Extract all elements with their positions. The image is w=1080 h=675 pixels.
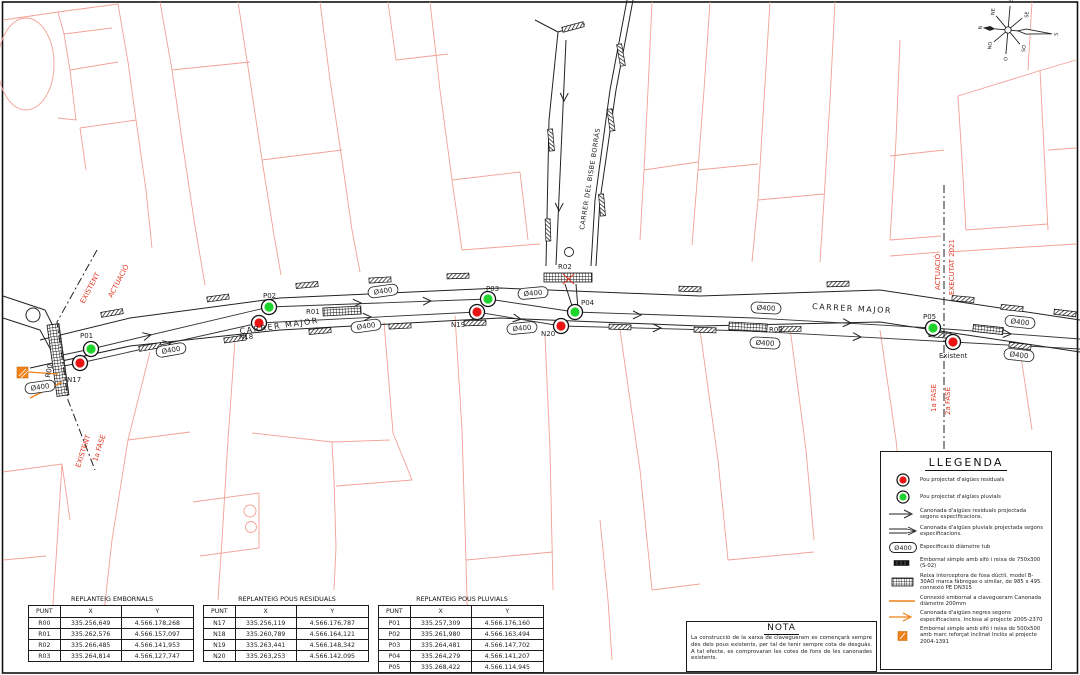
table-cell: 335.264,279 <box>410 651 471 662</box>
compass-o: O <box>1003 57 1009 62</box>
note-title: NOTA <box>691 623 872 633</box>
table-header-cell: X <box>410 606 471 618</box>
compass-so: SO <box>1021 45 1028 53</box>
compass-se: SE <box>1024 11 1031 18</box>
point-label-existent: Existent <box>939 352 968 360</box>
table-cell: 335.266,485 <box>60 640 121 651</box>
manhole-existing <box>26 308 40 322</box>
diameter-badge-icon: Ø400 <box>886 541 920 554</box>
compass-s: S <box>1054 32 1060 36</box>
table-cell: 4.566.147,702 <box>471 640 543 651</box>
table-row: P01335.257,3094.566.176,160 <box>379 618 544 629</box>
plan-sheet: Ø400 Ø400 Ø400 Ø400 Ø400 Ø400 Ø400 Ø400 … <box>0 0 1080 675</box>
point-label-r03: R03 <box>769 326 783 334</box>
table-cell: 335.256,649 <box>60 618 121 629</box>
table-cell: 335.268,422 <box>410 662 471 673</box>
table-row: P05335.268,4224.566.114,945 <box>379 662 544 673</box>
legend-item: Canonada d'aigües pluvials projectada se… <box>886 524 1046 538</box>
table-header-cell: X <box>235 606 296 618</box>
table-header-cell: PUNT <box>29 606 61 618</box>
table-header-row: PUNTXY <box>379 606 544 618</box>
coordinate-table: PUNTXYP01335.257,3094.566.176,160P02335.… <box>378 605 544 673</box>
legend-item-label: Especificació diàmetre tub <box>920 544 990 550</box>
diameter-label: Ø400 <box>512 324 532 334</box>
embornal-icon <box>886 558 920 568</box>
legend-item-label: Canonada d'aigües residuals projectada s… <box>920 508 1046 521</box>
table-row: N17335.256,1194.566.176,787 <box>204 618 369 629</box>
phase-actuacio-top: ACTUACIÓ <box>106 262 131 299</box>
table-header-row: PUNTXY <box>204 606 369 618</box>
phase-1afase-right: 1a FASE <box>930 384 938 412</box>
legend-item: Ø400 Especificació diàmetre tub <box>886 541 1046 554</box>
compass-e: E <box>1008 0 1014 3</box>
table-header-cell: PUNT <box>204 606 236 618</box>
table-header-cell: Y <box>121 606 193 618</box>
table-row: P03335.264,4814.566.147,702 <box>379 640 544 651</box>
table-cell: 4.566.176,787 <box>296 618 368 629</box>
street-edges <box>3 0 1080 368</box>
diameter-label: Ø400 <box>523 289 543 299</box>
legend-item-label: Canonada d'aigües negres segons especifi… <box>920 610 1046 623</box>
table-cell: 4.566.163,494 <box>471 629 543 640</box>
table-cell: 4.566.164,121 <box>296 629 368 640</box>
table-cell: 4.566.141,207 <box>471 651 543 662</box>
coordinate-table: PUNTXYR00335.256,6494.566.178,268R01335.… <box>28 605 194 662</box>
legend-item: Pou projectat d'aigües residuals <box>886 473 1046 487</box>
table-row: N20335.263,2534.566.142,095 <box>204 651 369 662</box>
legend-item-label: Pou projectat d'aigües residuals <box>920 477 1004 483</box>
pipe-pluvial-icon <box>886 524 920 538</box>
table-row: R01335.262,5764.566.157,097 <box>29 629 194 640</box>
table-title: REPLANTEIG POUS RESIDUALS <box>203 593 371 605</box>
table-cell: 4.566.148,342 <box>296 640 368 651</box>
phase-existent-bottom: EXISTENT <box>74 433 92 468</box>
table-cell: N17 <box>204 618 236 629</box>
pou-residual-icon <box>886 473 920 487</box>
compass-n: N <box>978 25 984 30</box>
compass-rose: N NE E SE S SO O NO <box>975 0 1062 65</box>
table-cell: 335.264,481 <box>410 640 471 651</box>
compass-ne: NE <box>990 8 997 15</box>
legend-item-label: Embornal simple amb sifó i reixa de 750x… <box>920 557 1046 570</box>
legend-item-label: Reixa interceptora de fosa dúctil, model… <box>920 573 1046 592</box>
phase-2afase-right: 2a FASE <box>944 387 952 415</box>
table-cell: 335.264,814 <box>60 651 121 662</box>
table-cell: 4.566.114,945 <box>471 662 543 673</box>
table-header-cell: Y <box>296 606 368 618</box>
phase-actuacio-right: ACTUACIÓ <box>933 253 942 290</box>
phase-existent-top: EXISTENT <box>79 271 102 305</box>
table-cell: 4.566.176,160 <box>471 618 543 629</box>
diameter-label: Ø400 <box>755 339 774 348</box>
table-cell: N19 <box>204 640 236 651</box>
table-pous-residuals: REPLANTEIG POUS RESIDUALS PUNTXYN17335.2… <box>203 593 371 662</box>
phase-executat-2021: EXECUTAT 2021 <box>948 239 956 295</box>
legend-item-label: Canonada d'aigües pluvials projectada se… <box>920 525 1046 538</box>
phase-1afase-left: 1a FASE <box>91 434 107 463</box>
point-label-p01: P01 <box>80 332 93 340</box>
table-row: R00335.256,6494.566.178,268 <box>29 618 194 629</box>
legend-item-label: Connexió embornal a clavegueram Canonada… <box>920 595 1046 608</box>
street-label-carrer-major-right: CARRER MAJOR <box>812 302 892 315</box>
coordinate-table: PUNTXYN17335.256,1194.566.176,787N18335.… <box>203 605 369 662</box>
table-cell: 335.263,441 <box>235 640 296 651</box>
legend-item: Reixa interceptora de fosa dúctil, model… <box>886 573 1046 592</box>
legend-panel: LLEGENDA Pou projectat d'aigües residual… <box>880 451 1052 670</box>
table-row: P04335.264,2794.566.141,207 <box>379 651 544 662</box>
pou-pluvial-icon <box>886 490 920 504</box>
table-cell: P03 <box>379 640 411 651</box>
compass-no: NO <box>987 41 994 49</box>
table-header-row: PUNTXY <box>29 606 194 618</box>
phase-boundary-lines <box>57 185 944 470</box>
table-header-cell: X <box>60 606 121 618</box>
table-row: R02335.266,4854.566.141,953 <box>29 640 194 651</box>
table-pous-pluvials: REPLANTEIG POUS PLUVIALS PUNTXYP01335.25… <box>378 593 546 673</box>
legend-item: Embornal simple amb sifó i reixa de 500x… <box>886 626 1046 645</box>
point-label-p03: P03 <box>486 285 499 293</box>
legend-item-label: Embornal simple amb sifó i reixa de 500x… <box>920 626 1046 645</box>
pipe-residual-icon <box>886 507 920 521</box>
table-cell: R01 <box>29 629 61 640</box>
legend-item: Canonada d'aigües negres segons especifi… <box>886 610 1046 623</box>
table-cell: P01 <box>379 618 411 629</box>
table-cell: R00 <box>29 618 61 629</box>
table-cell: R03 <box>29 651 61 662</box>
legend-item: Canonada d'aigües residuals projectada s… <box>886 507 1046 521</box>
point-label-r01: R01 <box>306 308 320 316</box>
point-label-n19: N19 <box>451 321 465 329</box>
table-row: N19335.263,4414.566.148,342 <box>204 640 369 651</box>
table-cell: 4.566.142,095 <box>296 651 368 662</box>
diameter-label: Ø400 <box>756 304 775 313</box>
note-panel: NOTA La construcció de la xarxa de clave… <box>686 621 877 672</box>
point-label-p04: P04 <box>581 299 595 307</box>
legend-item: Embornal simple amb sifó i reixa de 750x… <box>886 557 1046 570</box>
table-cell: R02 <box>29 640 61 651</box>
legend-title: LLEGENDA <box>886 456 1046 469</box>
phase-labels: EXISTENT ACTUACIÓ EXISTENT 1a FASE ACTUA… <box>74 239 956 469</box>
table-row: R03335.264,8144.566.127,747 <box>29 651 194 662</box>
reixa-icon <box>886 576 920 588</box>
embornal-500-icon <box>886 630 920 642</box>
table-title: REPLANTEIG EMBORNALS <box>28 593 196 605</box>
point-label-n20: N20 <box>541 330 555 338</box>
table-cell: P04 <box>379 651 411 662</box>
negres-icon <box>886 611 920 623</box>
table-cell: N18 <box>204 629 236 640</box>
point-label-p05: P05 <box>923 313 936 321</box>
table-cell: 335.256,119 <box>235 618 296 629</box>
sewer-pipes <box>52 299 1080 368</box>
table-cell: 4.566.178,268 <box>121 618 193 629</box>
table-row: N18335.260,7894.566.164,121 <box>204 629 369 640</box>
table-cell: 335.262,576 <box>60 629 121 640</box>
legend-item: Connexió embornal a clavegueram Canonada… <box>886 595 1046 608</box>
point-label-r00: R00 <box>44 363 54 378</box>
point-label-r02: R02 <box>558 263 572 271</box>
table-cell: 4.566.157,097 <box>121 629 193 640</box>
legend-item-label: Pou projectat d'aigües pluvials <box>920 494 1001 500</box>
table-header-cell: PUNT <box>379 606 411 618</box>
table-cell: 335.263,253 <box>235 651 296 662</box>
point-label-n17: N17 <box>67 376 81 384</box>
svg-text:Ø400: Ø400 <box>894 544 912 552</box>
table-cell: P02 <box>379 629 411 640</box>
table-cell: 335.257,309 <box>410 618 471 629</box>
note-body: La construcció de la xarxa de claveguera… <box>691 635 872 662</box>
table-cell: 4.566.127,747 <box>121 651 193 662</box>
table-cell: P05 <box>379 662 411 673</box>
diameter-labels: Ø400 Ø400 Ø400 Ø400 Ø400 Ø400 Ø400 Ø400 … <box>24 283 1035 394</box>
legend-item: Pou projectat d'aigües pluvials <box>886 490 1046 504</box>
table-cell: 335.260,789 <box>235 629 296 640</box>
table-cell: 335.261,980 <box>410 629 471 640</box>
street-label-carrer-major-left: CARRER MAJOR <box>239 316 319 336</box>
table-cell: 4.566.141,953 <box>121 640 193 651</box>
table-header-cell: Y <box>471 606 543 618</box>
table-embornals: REPLANTEIG EMBORNALS PUNTXYR00335.256,64… <box>28 593 196 662</box>
table-title: REPLANTEIG POUS PLUVIALS <box>378 593 546 605</box>
point-label-p02: P02 <box>263 292 276 300</box>
table-cell: N20 <box>204 651 236 662</box>
table-row: P02335.261,9804.566.163,494 <box>379 629 544 640</box>
connexio-icon <box>886 597 920 605</box>
